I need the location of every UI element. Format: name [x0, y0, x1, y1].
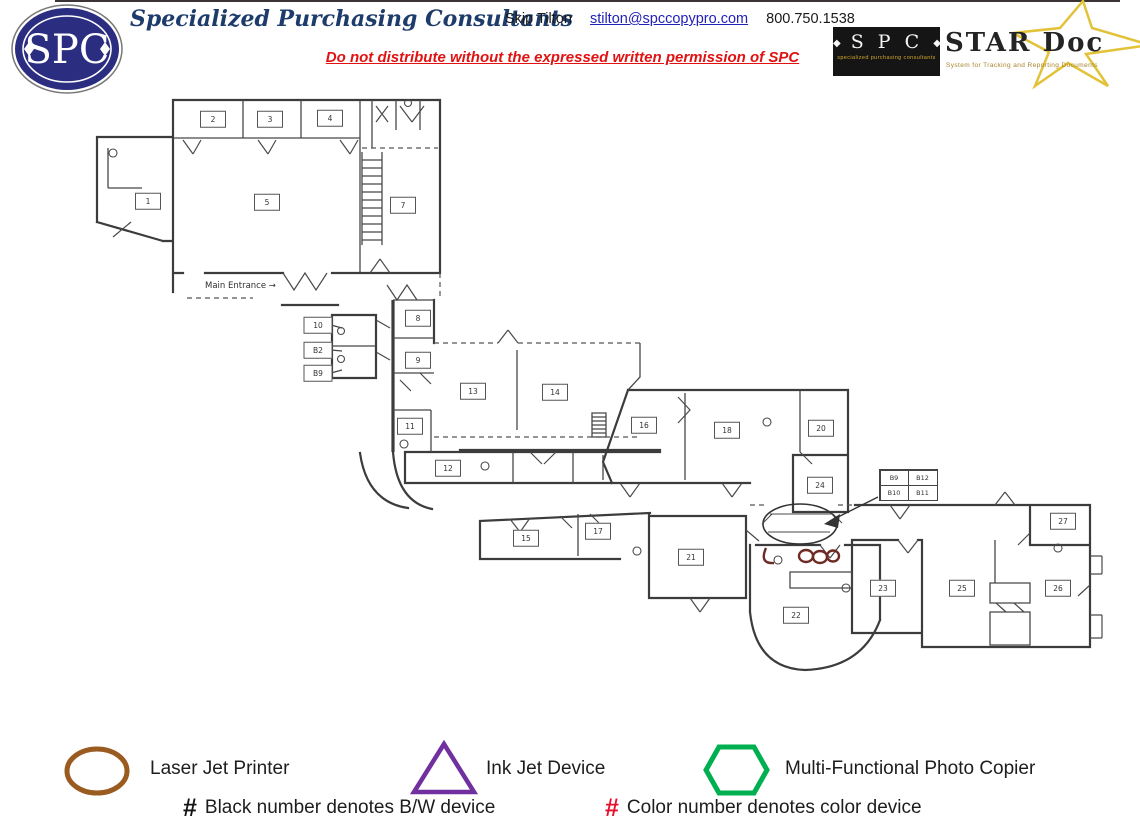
color-device-note: #Color number denotes color device — [605, 794, 922, 823]
fixture-icons — [109, 100, 1062, 593]
stardoc-spc-subtext: specialized purchasing consultants — [833, 55, 940, 61]
room-label-4: 4 — [317, 110, 343, 127]
stardoc-tagline: System for Tracking and Reporting Docume… — [946, 62, 1098, 69]
device-table-cell-B11: B11 — [908, 485, 938, 501]
room-label-23: 23 — [870, 580, 896, 597]
room-label-1: 1 — [135, 193, 161, 210]
laserjet-legend-icon — [64, 746, 130, 796]
floorplan-drawing — [0, 0, 1140, 828]
device-number-table: B9B12B10B11 — [879, 469, 938, 501]
copier-legend-label: Multi-Functional Photo Copier — [785, 758, 1035, 780]
red-hash-symbol: # — [605, 794, 619, 822]
room-label-5: 5 — [254, 194, 280, 211]
device-table-cell-B12: B12 — [908, 470, 938, 486]
room-label-16: 16 — [631, 417, 657, 434]
room-label-2: 2 — [200, 111, 226, 128]
main-entrance-label: Main Entrance → — [205, 281, 276, 291]
room-label-25: 25 — [949, 580, 975, 597]
room-label-20: 20 — [808, 420, 834, 437]
wall-label-B2: B2 — [304, 342, 333, 359]
arrowhead-icon — [824, 514, 840, 528]
room-label-9: 9 — [405, 352, 431, 369]
wall-label-B9: B9 — [304, 365, 333, 382]
laserjet-marks — [764, 548, 839, 563]
document-page: SPC Specialized Purchasing Consultants S… — [0, 0, 1140, 828]
wall-label-10: 10 — [304, 317, 333, 334]
room-label-14: 14 — [542, 384, 568, 401]
room-label-22: 22 — [783, 607, 809, 624]
room-label-26: 26 — [1045, 580, 1071, 597]
laserjet-legend-label: Laser Jet Printer — [150, 758, 289, 780]
room-label-18: 18 — [714, 422, 740, 439]
room-label-8: 8 — [405, 310, 431, 327]
room-label-21: 21 — [678, 549, 704, 566]
room-label-15: 15 — [513, 530, 539, 547]
room-label-27: 27 — [1050, 513, 1076, 530]
stardoc-spc-text: ◆ S P C ◆ — [833, 31, 940, 53]
floorplan: Main Entrance → 123457891112131415161718… — [0, 0, 1140, 828]
black-hash-symbol: # — [183, 794, 197, 822]
device-table-cell-B9: B9 — [880, 470, 909, 486]
stardoc-title: STAR Doc — [945, 28, 1104, 58]
room-label-24: 24 — [807, 477, 833, 494]
room-label-7: 7 — [390, 197, 416, 214]
room-label-3: 3 — [257, 111, 283, 128]
page-edge-fade — [1080, 745, 1140, 795]
room-label-11: 11 — [397, 418, 423, 435]
stardoc-spc-box: ◆ S P C ◆ specialized purchasing consult… — [833, 27, 940, 76]
device-table-cell-B10: B10 — [880, 485, 909, 501]
bw-device-note: #Black number denotes B/W device — [183, 794, 495, 823]
inkjet-legend-label: Ink Jet Device — [486, 758, 605, 780]
room-label-13: 13 — [460, 383, 486, 400]
copier-legend-icon — [702, 743, 772, 797]
room-label-12: 12 — [435, 460, 461, 477]
inkjet-legend-icon — [410, 740, 478, 796]
room-label-17: 17 — [585, 523, 611, 540]
